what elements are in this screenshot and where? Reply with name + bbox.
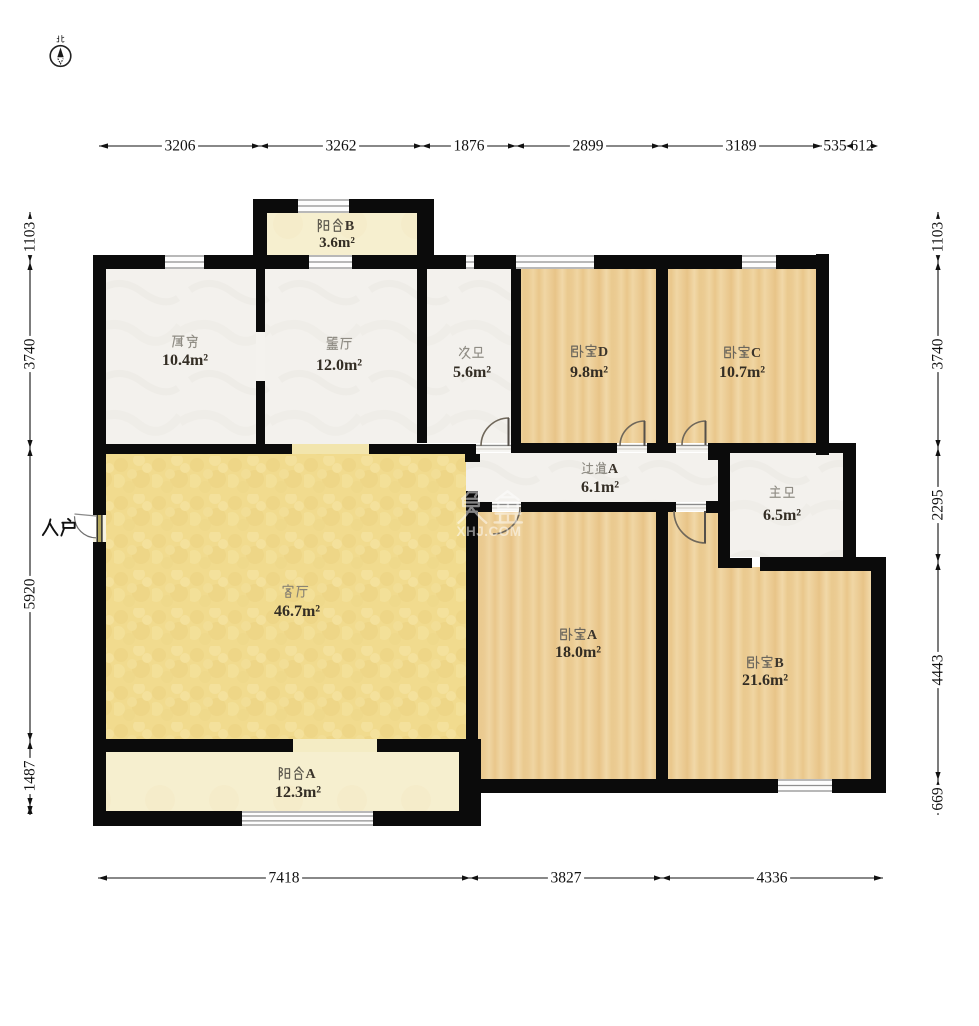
svg-text:5920: 5920 (22, 578, 39, 609)
svg-text:4336: 4336 (757, 870, 788, 887)
svg-text:3189: 3189 (726, 138, 757, 155)
svg-text:10.4m²: 10.4m² (162, 352, 208, 369)
svg-text:3206: 3206 (165, 138, 196, 155)
svg-text:4443: 4443 (930, 654, 947, 685)
svg-text:669: 669 (930, 787, 947, 811)
svg-text:6.5m²: 6.5m² (763, 507, 801, 524)
svg-text:3740: 3740 (930, 338, 947, 369)
svg-text:12.0m²: 12.0m² (316, 357, 362, 374)
svg-text:2295: 2295 (930, 489, 947, 520)
svg-text:C: C (751, 346, 761, 361)
svg-text:612: 612 (850, 138, 873, 155)
svg-text:3740: 3740 (22, 338, 39, 369)
svg-text:18.0m²: 18.0m² (555, 644, 601, 661)
svg-text:5.6m²: 5.6m² (453, 364, 491, 381)
svg-text:D: D (598, 345, 608, 360)
svg-text:21.6m²: 21.6m² (742, 672, 788, 689)
svg-text:6.1m²: 6.1m² (581, 479, 619, 496)
svg-text:XHJ.COM: XHJ.COM (456, 524, 521, 539)
svg-text:7418: 7418 (269, 870, 300, 887)
svg-text:1103: 1103 (22, 222, 39, 253)
svg-text:A: A (305, 767, 316, 782)
svg-text:1103: 1103 (930, 222, 947, 253)
svg-text:3262: 3262 (326, 138, 357, 155)
svg-text:2899: 2899 (573, 138, 604, 155)
svg-text:A: A (608, 462, 619, 477)
svg-text:3.6m²: 3.6m² (319, 235, 355, 251)
svg-text:1876: 1876 (454, 138, 485, 155)
svg-text:535: 535 (823, 138, 847, 155)
svg-text:1487: 1487 (22, 760, 39, 791)
svg-text:9.8m²: 9.8m² (570, 364, 608, 381)
svg-text:12.3m²: 12.3m² (275, 784, 321, 801)
svg-text:3827: 3827 (551, 870, 582, 887)
svg-text:B: B (345, 219, 354, 234)
svg-text:10.7m²: 10.7m² (719, 364, 765, 381)
svg-text:B: B (774, 656, 783, 671)
svg-text:46.7m²: 46.7m² (274, 603, 320, 620)
svg-text:A: A (587, 628, 598, 643)
